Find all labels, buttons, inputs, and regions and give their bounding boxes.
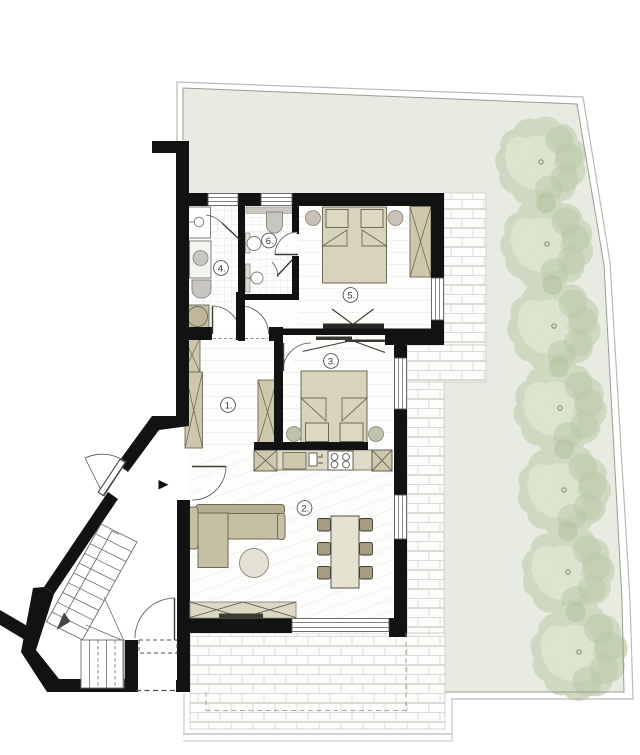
svg-text:1.: 1. (225, 400, 233, 411)
svg-text:6.: 6. (266, 236, 274, 247)
svg-text:3.: 3. (328, 356, 336, 367)
svg-text:5.: 5. (347, 290, 355, 301)
svg-text:2.: 2. (301, 503, 309, 514)
svg-text:4.: 4. (218, 263, 226, 274)
